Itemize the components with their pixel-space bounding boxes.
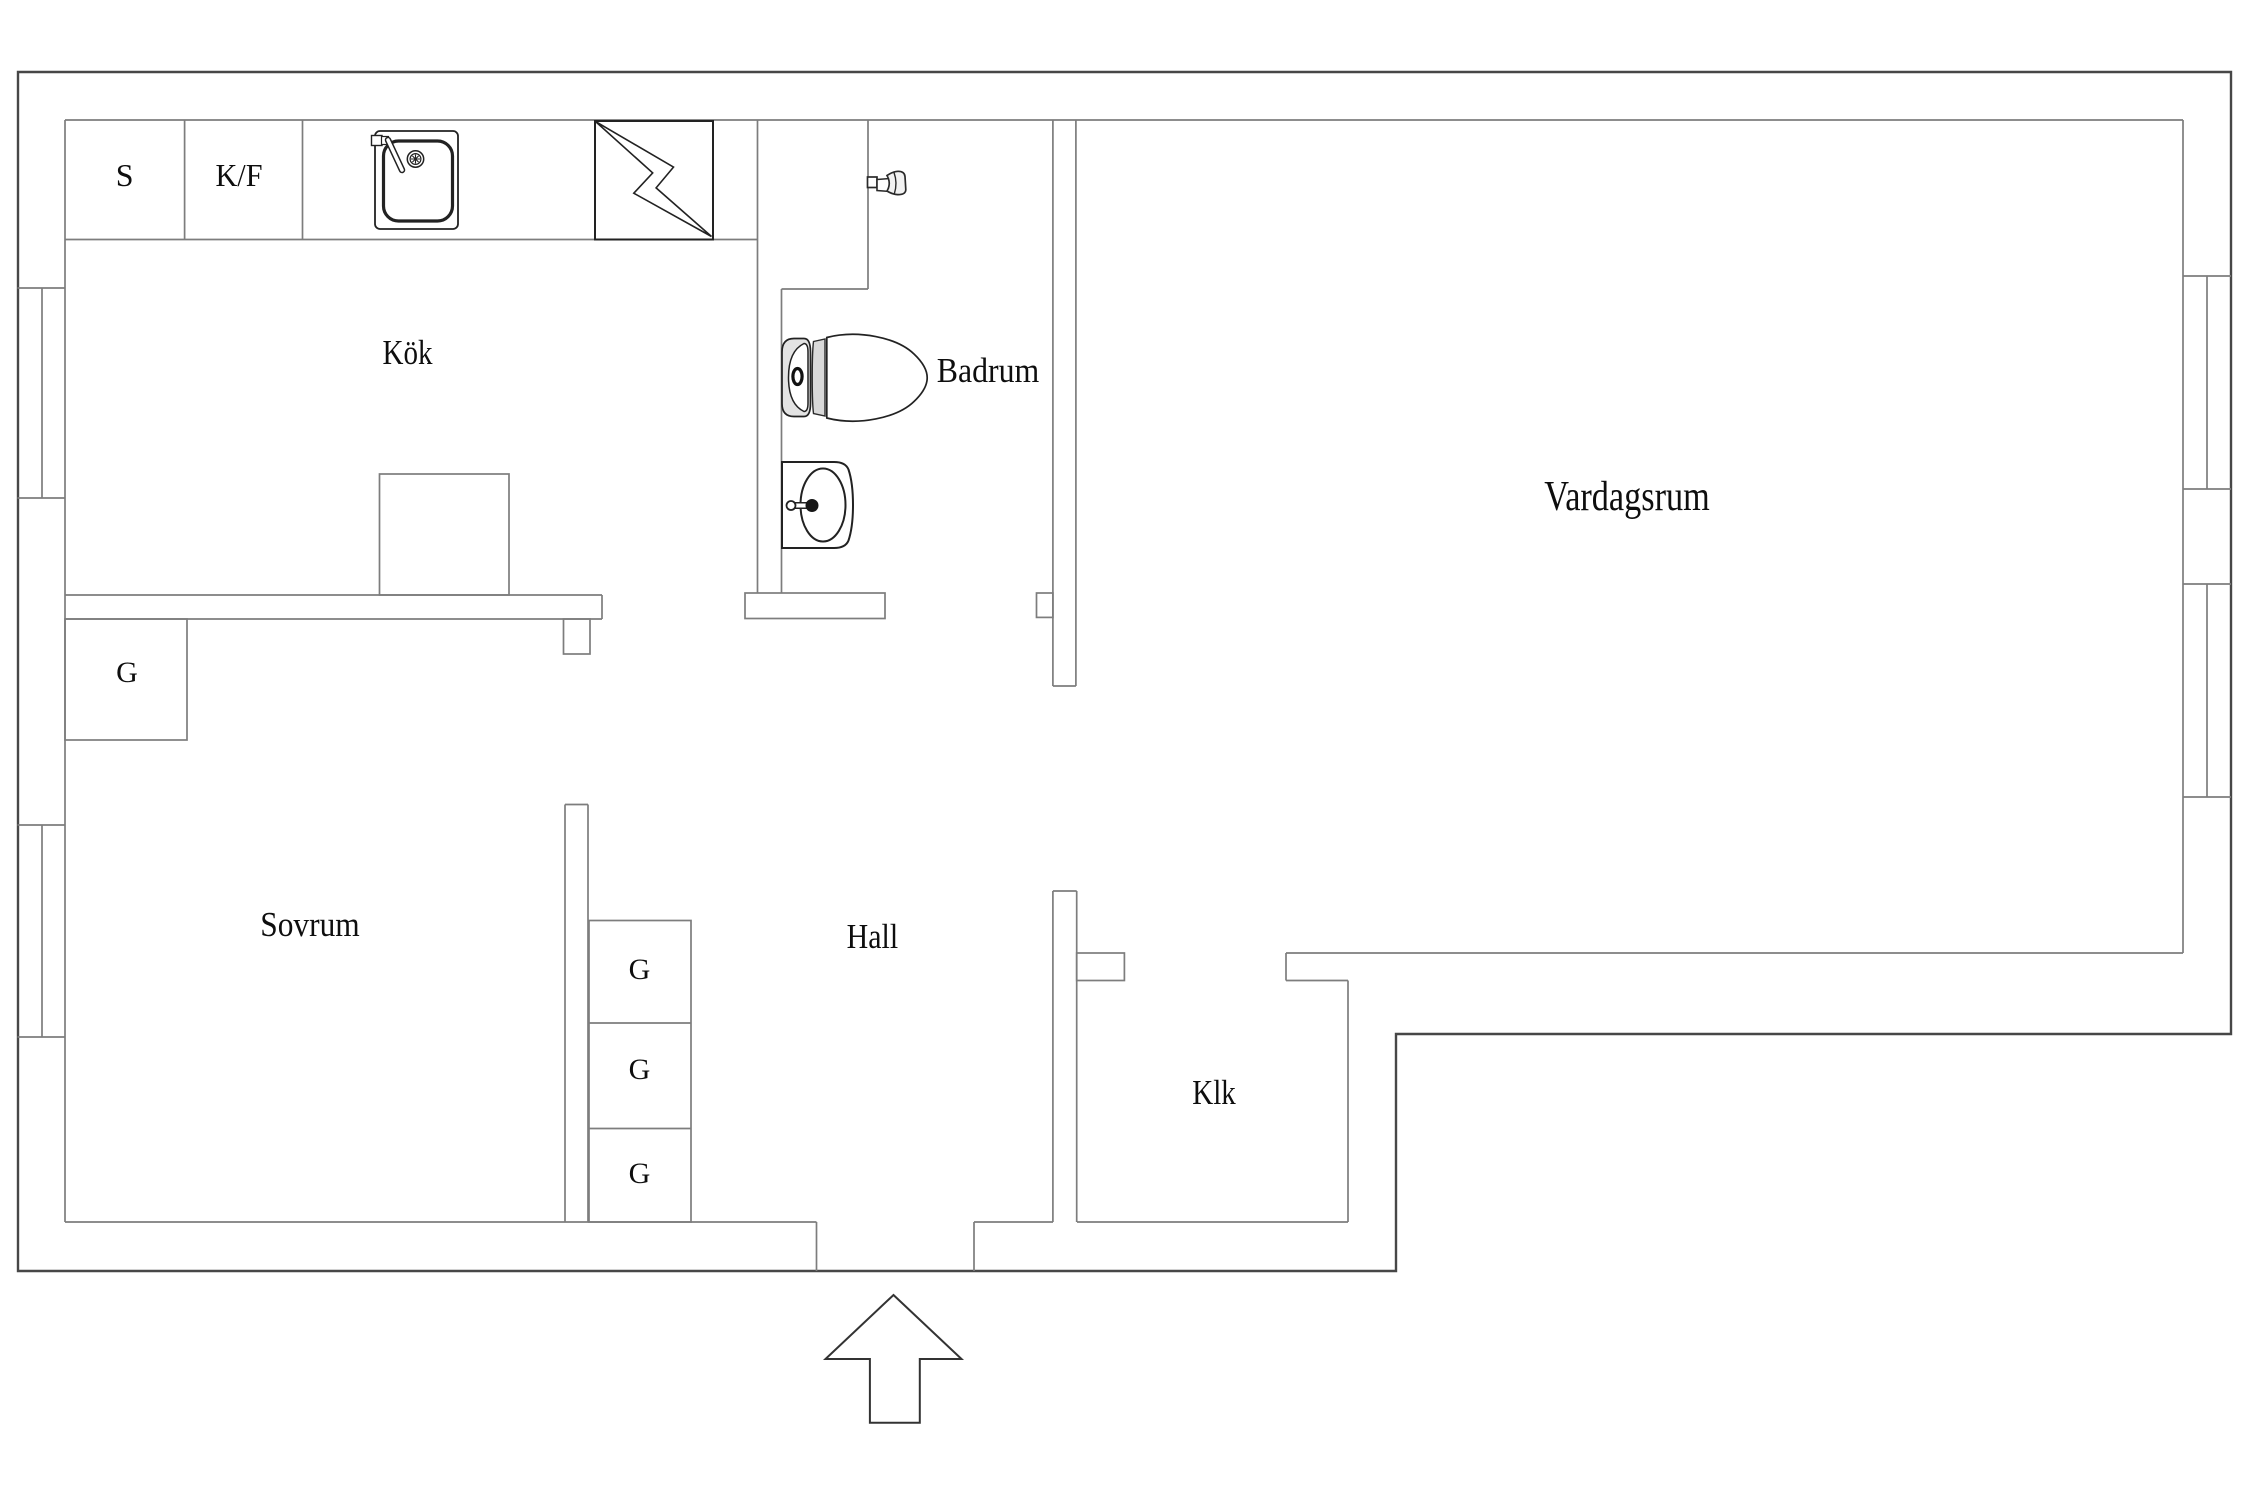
svg-text:G: G: [629, 953, 651, 986]
svg-text:S: S: [116, 157, 134, 193]
svg-text:Hall: Hall: [847, 917, 899, 956]
svg-text:Kök: Kök: [383, 333, 433, 372]
svg-text:Badrum: Badrum: [937, 351, 1040, 390]
svg-text:Sovrum: Sovrum: [260, 905, 360, 944]
svg-text:G: G: [629, 1053, 651, 1086]
svg-text:K/F: K/F: [216, 157, 263, 193]
svg-text:G: G: [629, 1157, 651, 1190]
svg-text:Klk: Klk: [1192, 1073, 1236, 1112]
svg-text:G: G: [116, 656, 138, 689]
svg-text:Vardagsrum: Vardagsrum: [1544, 474, 1710, 520]
